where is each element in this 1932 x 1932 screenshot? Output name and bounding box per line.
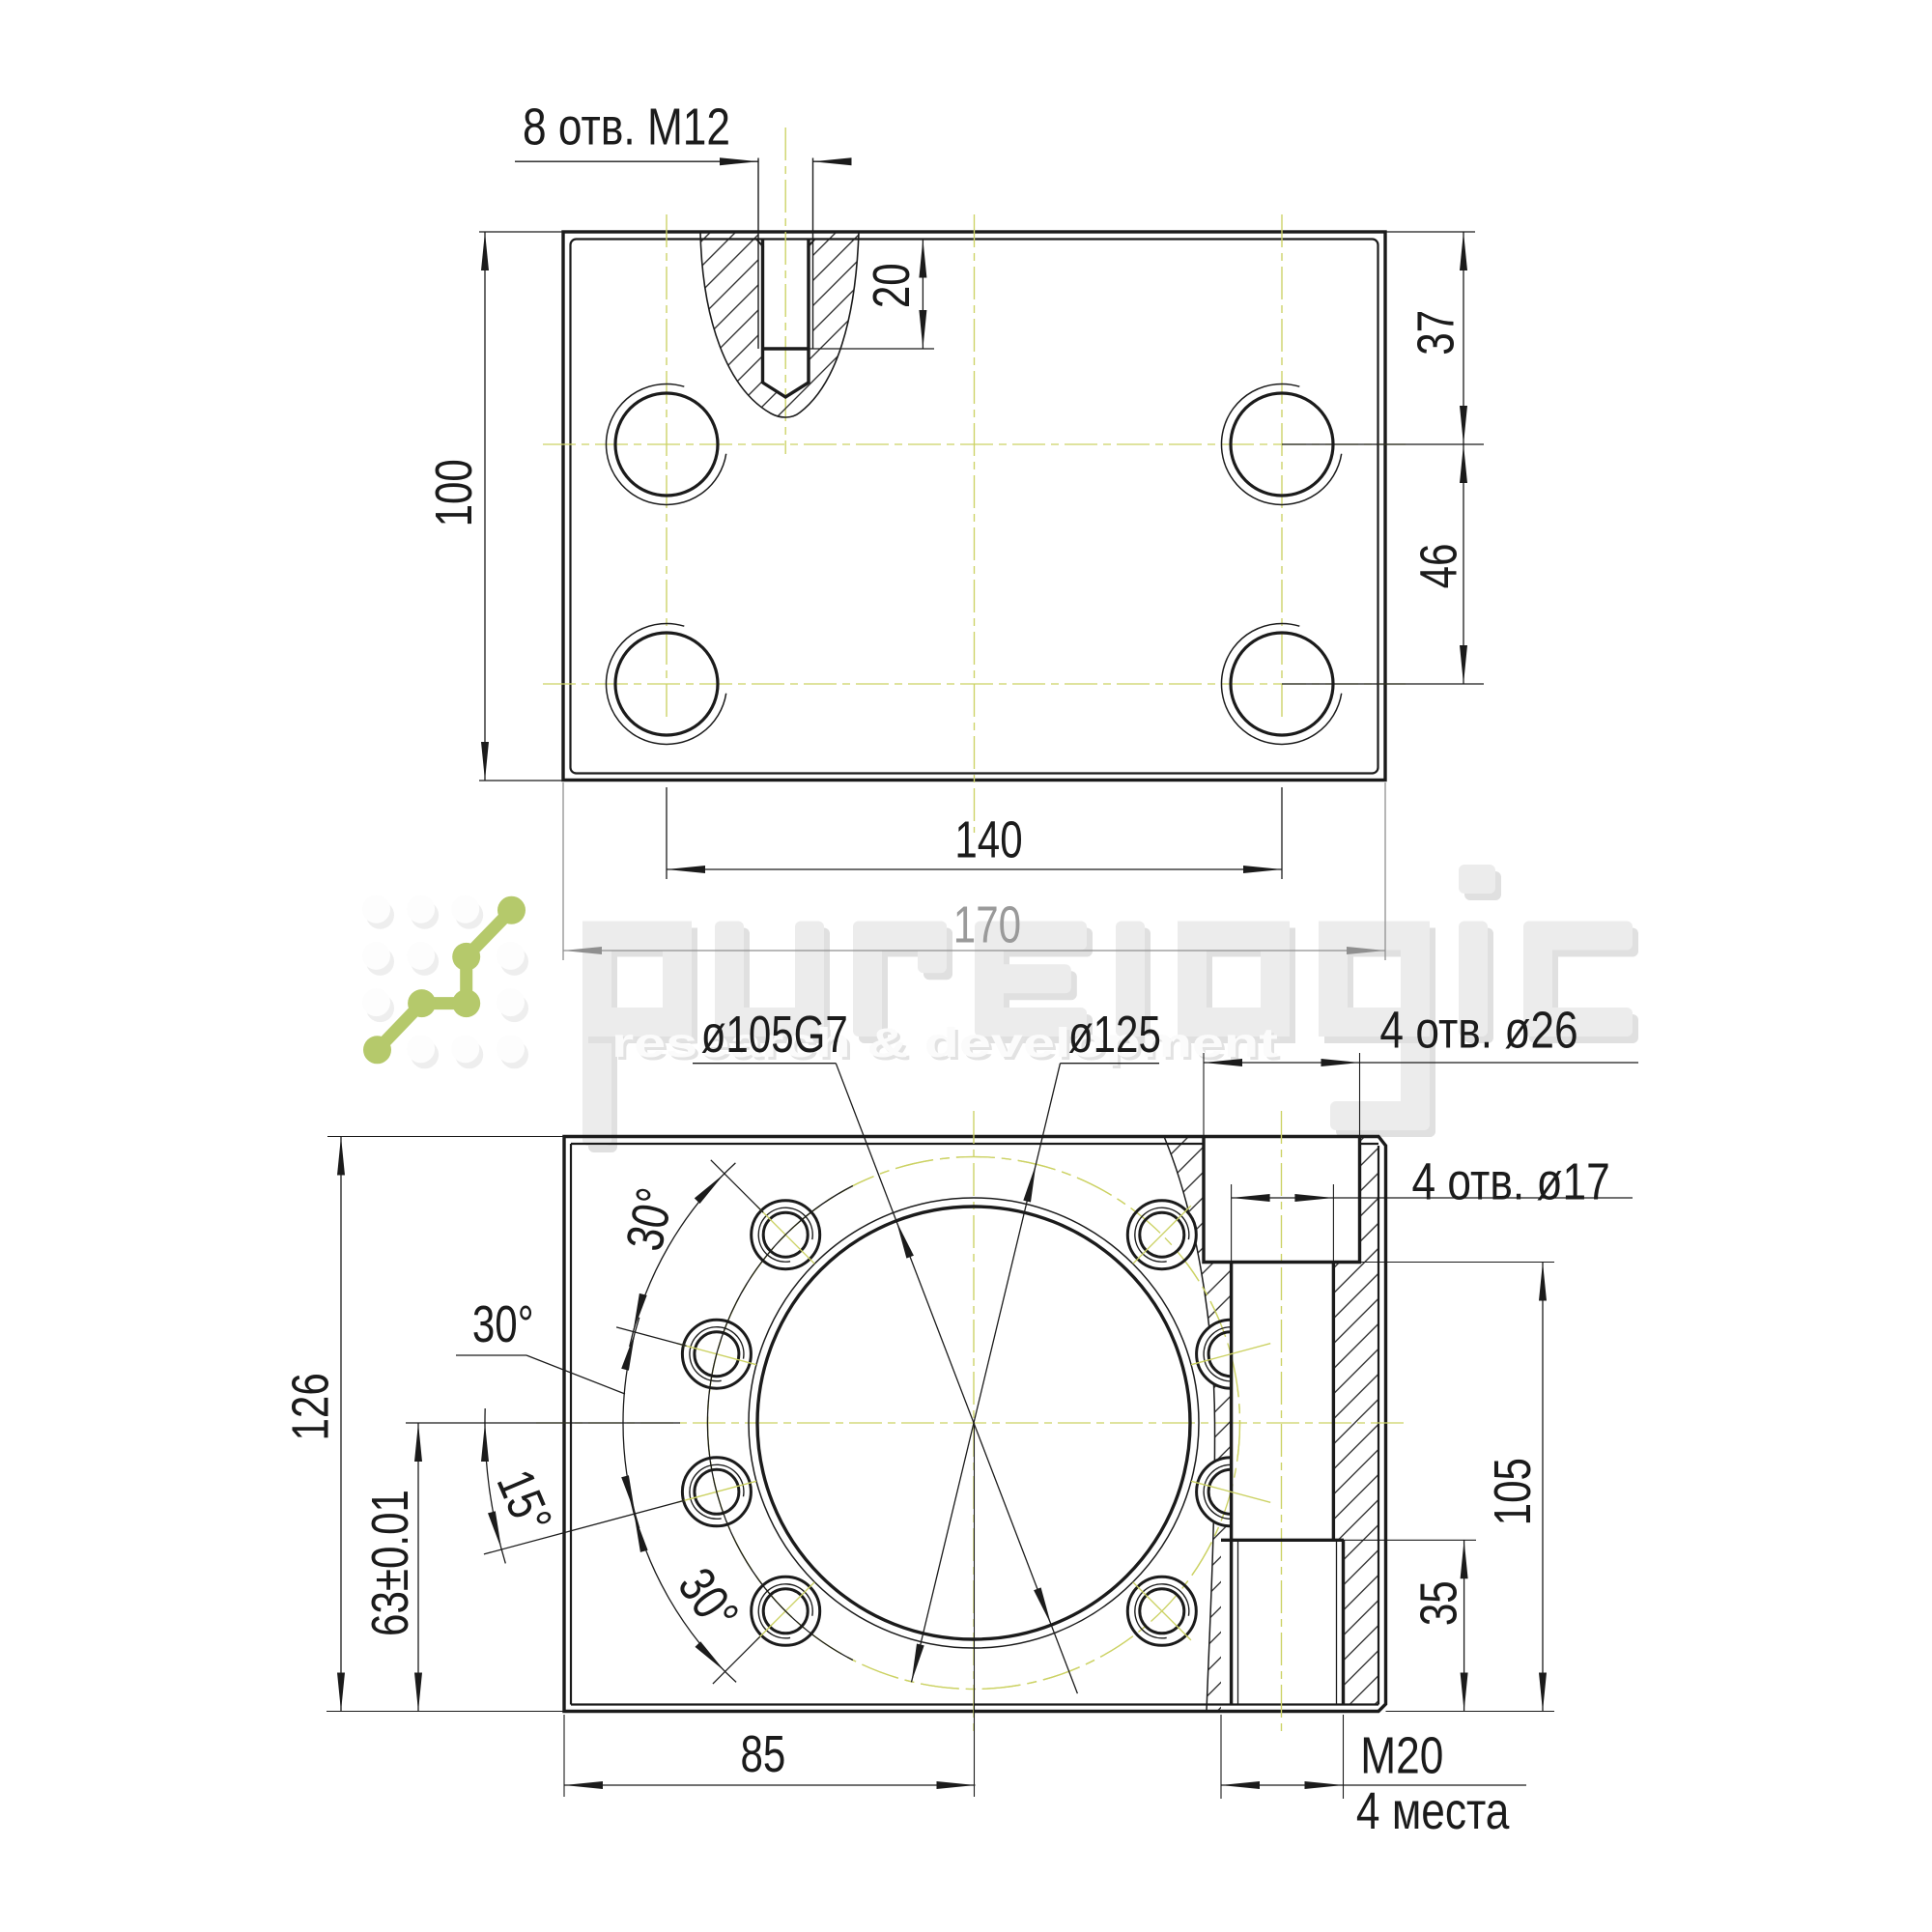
svg-text:37: 37 [1407, 310, 1465, 355]
svg-text:126: 126 [281, 1373, 339, 1440]
svg-text:35: 35 [1410, 1580, 1468, 1626]
svg-text:63±0.01: 63±0.01 [361, 1490, 419, 1636]
svg-text:ø105G7: ø105G7 [701, 1006, 848, 1064]
svg-text:ø125: ø125 [1068, 1006, 1161, 1064]
svg-text:85: 85 [740, 1725, 785, 1783]
svg-text:46: 46 [1410, 544, 1468, 589]
svg-text:105: 105 [1484, 1458, 1542, 1525]
svg-text:8 отв. М12: 8 отв. М12 [523, 98, 730, 156]
svg-text:30°: 30° [472, 1295, 534, 1353]
svg-text:100: 100 [425, 459, 483, 526]
svg-text:20: 20 [863, 263, 921, 308]
svg-text:170: 170 [953, 896, 1021, 954]
svg-text:M20: M20 [1360, 1726, 1443, 1784]
svg-text:4 места: 4 места [1356, 1782, 1510, 1840]
svg-text:140: 140 [954, 811, 1022, 869]
svg-text:4 отв. ø17: 4 отв. ø17 [1412, 1153, 1610, 1211]
svg-text:4 отв. ø26: 4 отв. ø26 [1379, 1001, 1577, 1059]
